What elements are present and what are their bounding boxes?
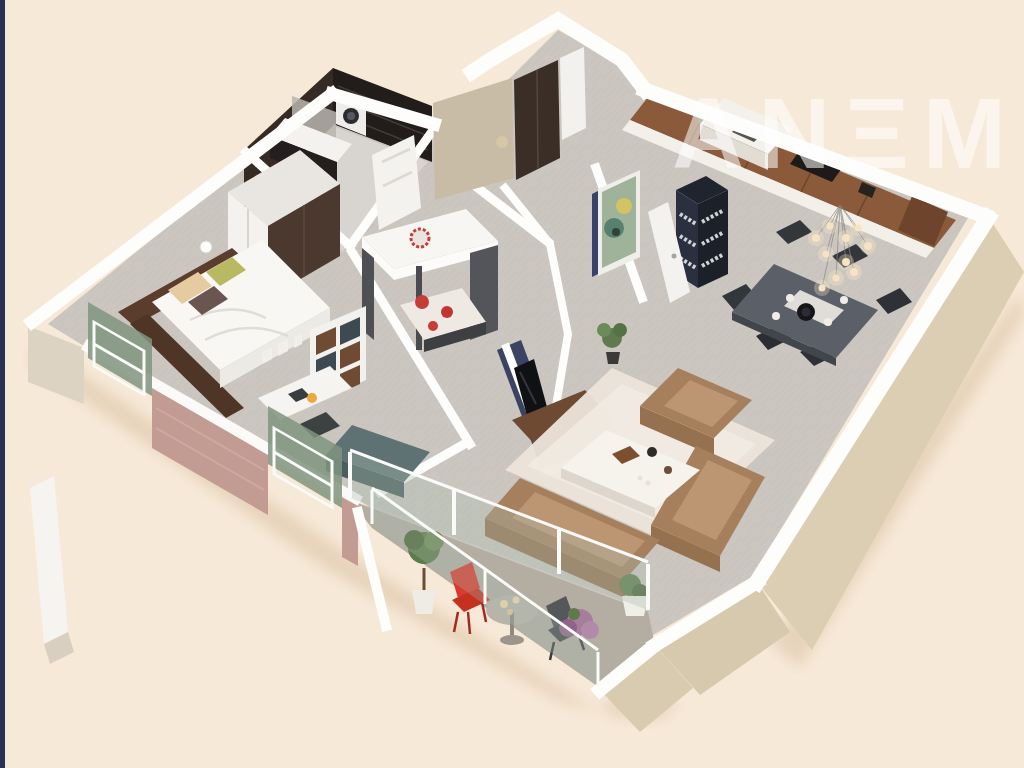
floorplan-canvas: ANΞM bbox=[0, 0, 1024, 768]
plant-foliage bbox=[597, 323, 611, 337]
coffee-table-bowl-small bbox=[664, 466, 672, 474]
artwork-blob-dark bbox=[612, 228, 620, 236]
plant-foliage bbox=[613, 323, 627, 337]
coffee-table-candle bbox=[638, 476, 643, 481]
dining-plate bbox=[786, 294, 794, 302]
pendant-bulb bbox=[827, 223, 834, 230]
coffee-table-bowl bbox=[647, 447, 657, 457]
pendant-bulb bbox=[864, 242, 872, 250]
plant-pot bbox=[606, 352, 620, 364]
bedside-lamp bbox=[200, 241, 212, 253]
dining-centerpiece-inner bbox=[802, 308, 811, 317]
entry-white-door bbox=[560, 47, 586, 140]
floorplan-render: ANΞM bbox=[0, 0, 1024, 768]
pendant-bulb bbox=[842, 234, 850, 242]
living-door-handle bbox=[672, 254, 677, 259]
coffee-table-candle bbox=[646, 481, 651, 486]
dining-plate bbox=[840, 296, 848, 304]
pendant-bulb bbox=[842, 258, 850, 266]
pendant-bulb bbox=[855, 225, 862, 232]
terrace-table-base bbox=[500, 635, 524, 645]
lower-bunk-red-blob bbox=[428, 321, 438, 331]
loft-bed-medallion bbox=[411, 229, 429, 247]
pendant-bulb bbox=[812, 234, 820, 242]
entry-wardrobe-seam bbox=[537, 70, 538, 169]
left-edge-strip bbox=[0, 0, 5, 768]
artwork-blob-yellow bbox=[616, 198, 632, 214]
coat-hook-bag bbox=[496, 136, 508, 148]
lower-bunk-red-blob bbox=[415, 295, 429, 309]
pendant-bulb bbox=[850, 268, 858, 276]
dining-plate bbox=[772, 312, 780, 320]
pendant-bulb bbox=[823, 251, 830, 258]
pendant-bulb bbox=[819, 285, 826, 292]
pendant-bulb bbox=[833, 275, 840, 282]
lower-bunk-red-blob bbox=[441, 306, 453, 318]
topiary-pot bbox=[412, 590, 436, 614]
washer-door-glass bbox=[347, 112, 355, 120]
dining-plate bbox=[824, 318, 832, 326]
desk-yellow-item bbox=[307, 393, 317, 403]
brick-face-small bbox=[342, 497, 358, 566]
watermark-logo: ANΞM bbox=[672, 77, 1020, 189]
